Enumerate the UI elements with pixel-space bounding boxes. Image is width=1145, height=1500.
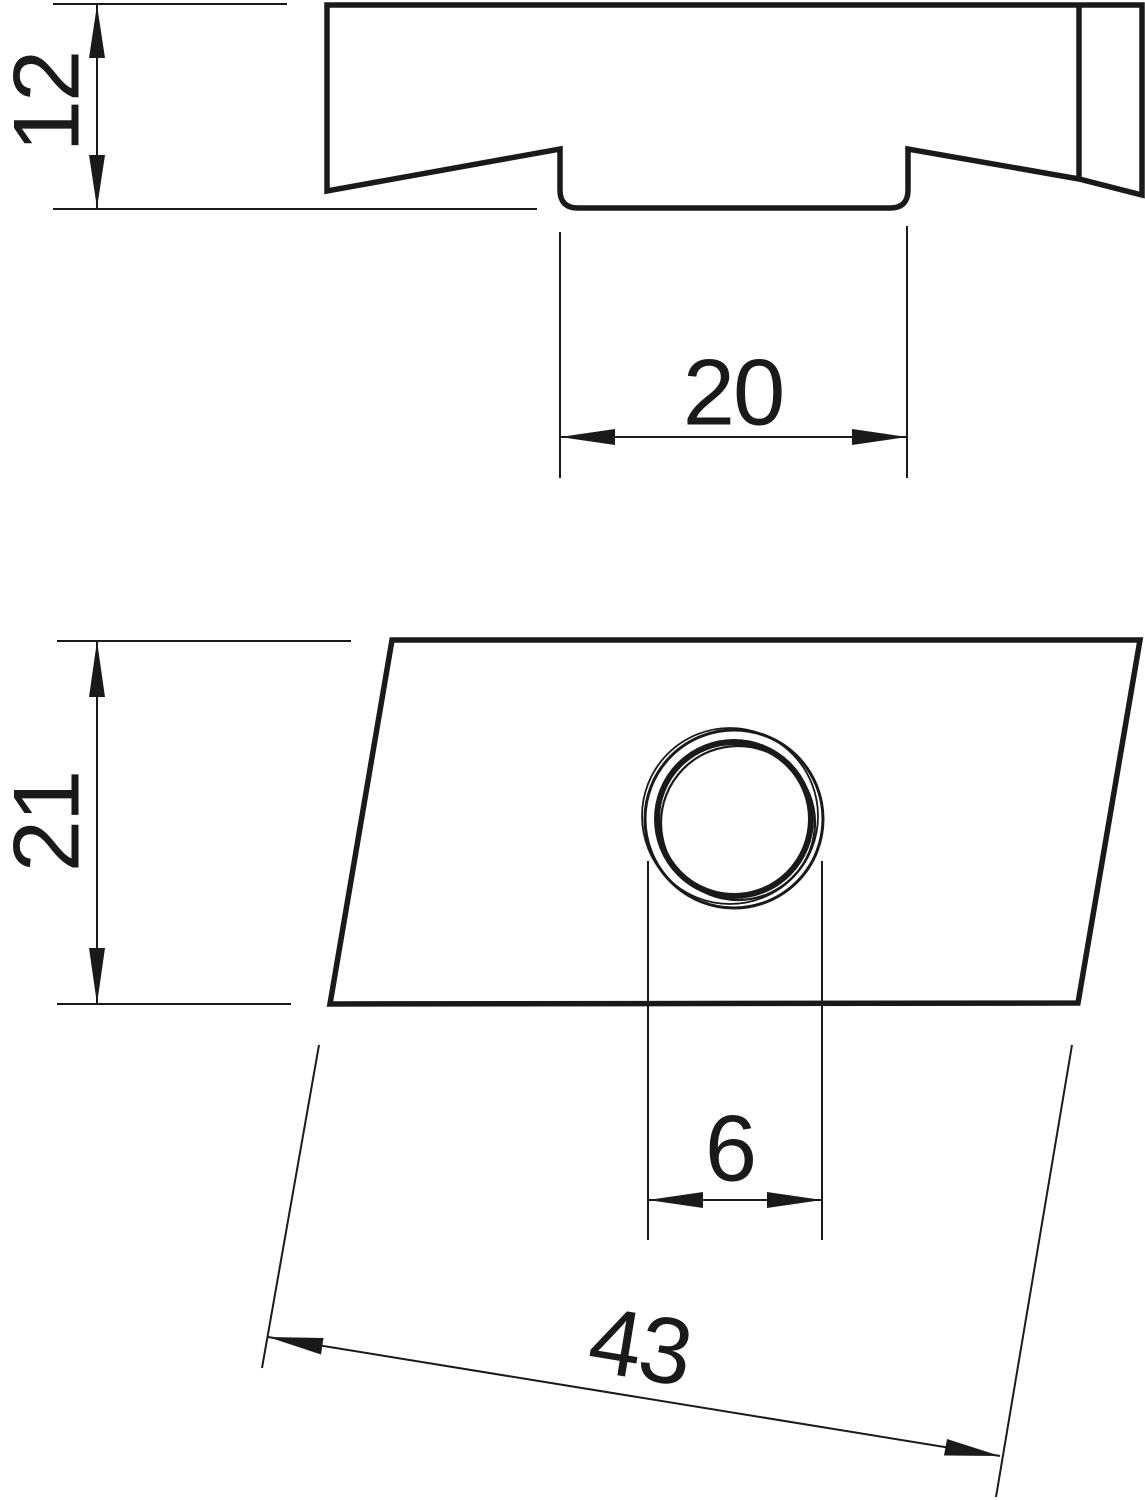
dimension-plate-length: 43 <box>262 1045 1072 1497</box>
technical-drawing-canvas: 12 20 21 6 <box>0 0 1145 1500</box>
arrowhead-down <box>89 155 105 208</box>
dimension-slot-width: 20 <box>560 226 907 478</box>
arrowhead-right <box>767 1192 822 1208</box>
dimension-label-20: 20 <box>683 340 784 445</box>
drawing-page: 12 20 21 6 <box>0 0 1145 1500</box>
arrowhead-left <box>648 1192 703 1208</box>
dimension-plate-width: 21 <box>0 641 351 1004</box>
arrowhead-down <box>89 948 105 1004</box>
arrowhead-right <box>852 429 907 445</box>
dimension-label-6: 6 <box>705 1096 755 1201</box>
dimension-profile-height: 12 <box>0 4 537 209</box>
arrowhead-right <box>944 1439 1000 1456</box>
plan-view <box>330 640 1140 1004</box>
dimension-label-12: 12 <box>0 52 99 153</box>
dimension-label-43: 43 <box>582 1286 698 1406</box>
arrowhead-left <box>268 1337 324 1355</box>
side-profile-view <box>327 5 1142 208</box>
extension-line-left <box>262 1045 319 1368</box>
side-view-outline <box>327 5 1142 208</box>
arrowhead-left <box>560 429 615 445</box>
hole-inner-circle-sketch <box>661 746 815 900</box>
arrowhead-up <box>89 641 105 697</box>
plan-view-outline <box>330 640 1140 1004</box>
arrowhead-up <box>89 5 105 58</box>
dimension-thread-size: 6 <box>648 861 822 1240</box>
extension-line-right <box>996 1045 1072 1497</box>
dimension-label-21: 21 <box>0 772 99 873</box>
